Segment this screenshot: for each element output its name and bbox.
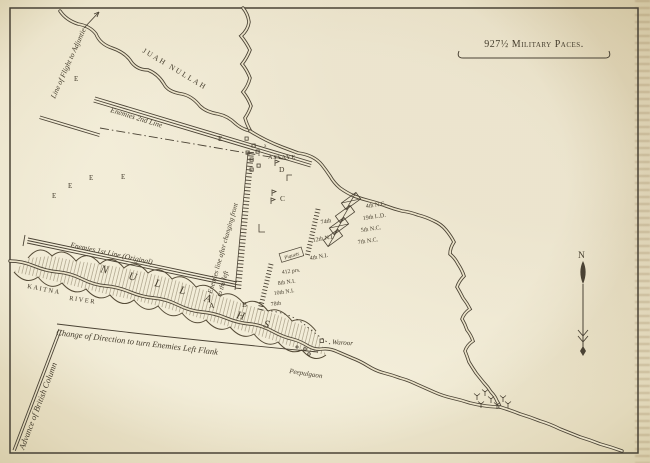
battle-map-svg: Piquets 4th N.C. 19th L.D. 5th N.C. 7th … xyxy=(0,0,650,463)
label-10th-ni: 10th N.I. xyxy=(273,288,295,297)
juah-nullah-stream xyxy=(60,11,250,131)
map-page: Piquets 4th N.C. 19th L.D. 5th N.C. 7th … xyxy=(0,0,650,463)
letter-e-1: E xyxy=(74,75,78,83)
letter-e-4: E xyxy=(89,174,93,182)
change-direction-label: Change of Direction to turn Enemies Left… xyxy=(56,327,219,357)
label-78th: 78th xyxy=(270,301,281,308)
label-4th-ni: 4th N.I. xyxy=(309,253,329,262)
enemy-movement-dashdot-line xyxy=(100,128,288,160)
letter-e-6: E xyxy=(218,135,222,143)
flight-route-label: Line of Flight to Adjuntie xyxy=(48,26,88,101)
scale-bar-label: 927½ Military Paces. xyxy=(484,39,583,50)
north-arrow: N xyxy=(578,251,588,356)
enemy-changed-front-line xyxy=(235,152,251,290)
advance-column-label: Advance of British Column xyxy=(16,361,59,452)
piquets-label: Piquets xyxy=(283,251,301,262)
british-first-line-bar xyxy=(307,209,318,257)
map-border-frame xyxy=(10,8,638,453)
label-412-prs: 412 prs. xyxy=(281,267,301,276)
letter-e-3: E xyxy=(68,182,72,190)
cavalry-label-4th-nc: 4th N.C. xyxy=(365,201,387,210)
arrow-head-icon xyxy=(580,261,585,284)
piquets-unit-box: Piquets xyxy=(279,247,304,262)
label-12th-ni: 12th N.I. xyxy=(312,234,335,244)
juah-nullah-label: JUAH NULLAH xyxy=(141,46,209,92)
kaitna-label: KAITNA xyxy=(27,283,62,296)
letter-b: B xyxy=(242,300,247,309)
assaye-label: ASSAYE xyxy=(268,154,296,161)
flight-arrow xyxy=(84,12,99,28)
letter-c: C xyxy=(280,194,285,203)
enemy-second-line-label: Enemies 2nd Line xyxy=(108,105,164,130)
scale-bar: 927½ Military Paces. xyxy=(458,39,610,58)
cavalry-label-19th-ld: 19th L.D. xyxy=(362,213,386,222)
north-label: N xyxy=(578,251,585,261)
british-second-line-bar xyxy=(260,264,271,310)
cavalry-label-7th-nc: 7th N.C. xyxy=(357,237,379,246)
advance-route-line xyxy=(13,329,61,451)
combined-river-east xyxy=(500,407,622,451)
north-branch-stream xyxy=(241,8,251,130)
letter-d: D xyxy=(279,165,285,174)
cavalry-label-5th-nc: 5th N.C. xyxy=(360,225,382,234)
letter-e-5: E xyxy=(121,173,125,181)
river-label: RIVER xyxy=(69,295,97,306)
letter-e-2: E xyxy=(52,192,56,200)
peepulgaon-label: Peepulgaon xyxy=(288,367,324,380)
waroor-label: Waroor xyxy=(332,338,354,347)
label-74th: 74th xyxy=(320,218,332,226)
small-flag-marks xyxy=(259,160,292,232)
scale-bar-line xyxy=(458,51,610,58)
label-8th-ni: 8th N.I. xyxy=(277,278,296,287)
